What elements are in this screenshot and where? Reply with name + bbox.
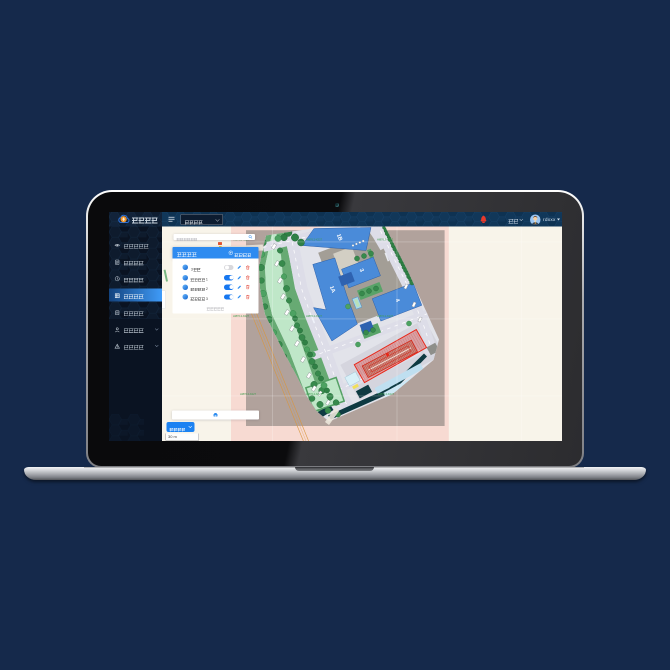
svg-text:HI876.2-K227: HI876.2-K227 (240, 392, 257, 396)
svg-text:HI876.2-K227: HI876.2-K227 (378, 392, 395, 396)
svg-text:HI876.2-K227: HI876.2-K227 (233, 314, 250, 318)
svg-text:HI876.2-K227: HI876.2-K227 (377, 314, 394, 318)
svg-text:HI876.2-K227: HI876.2-K227 (306, 238, 323, 242)
svg-text:HI876.2-K227: HI876.2-K227 (377, 238, 394, 242)
svg-text:HI876.2-K227: HI876.2-K227 (306, 314, 323, 318)
svg-text:HI876.2-K227: HI876.2-K227 (306, 392, 323, 396)
